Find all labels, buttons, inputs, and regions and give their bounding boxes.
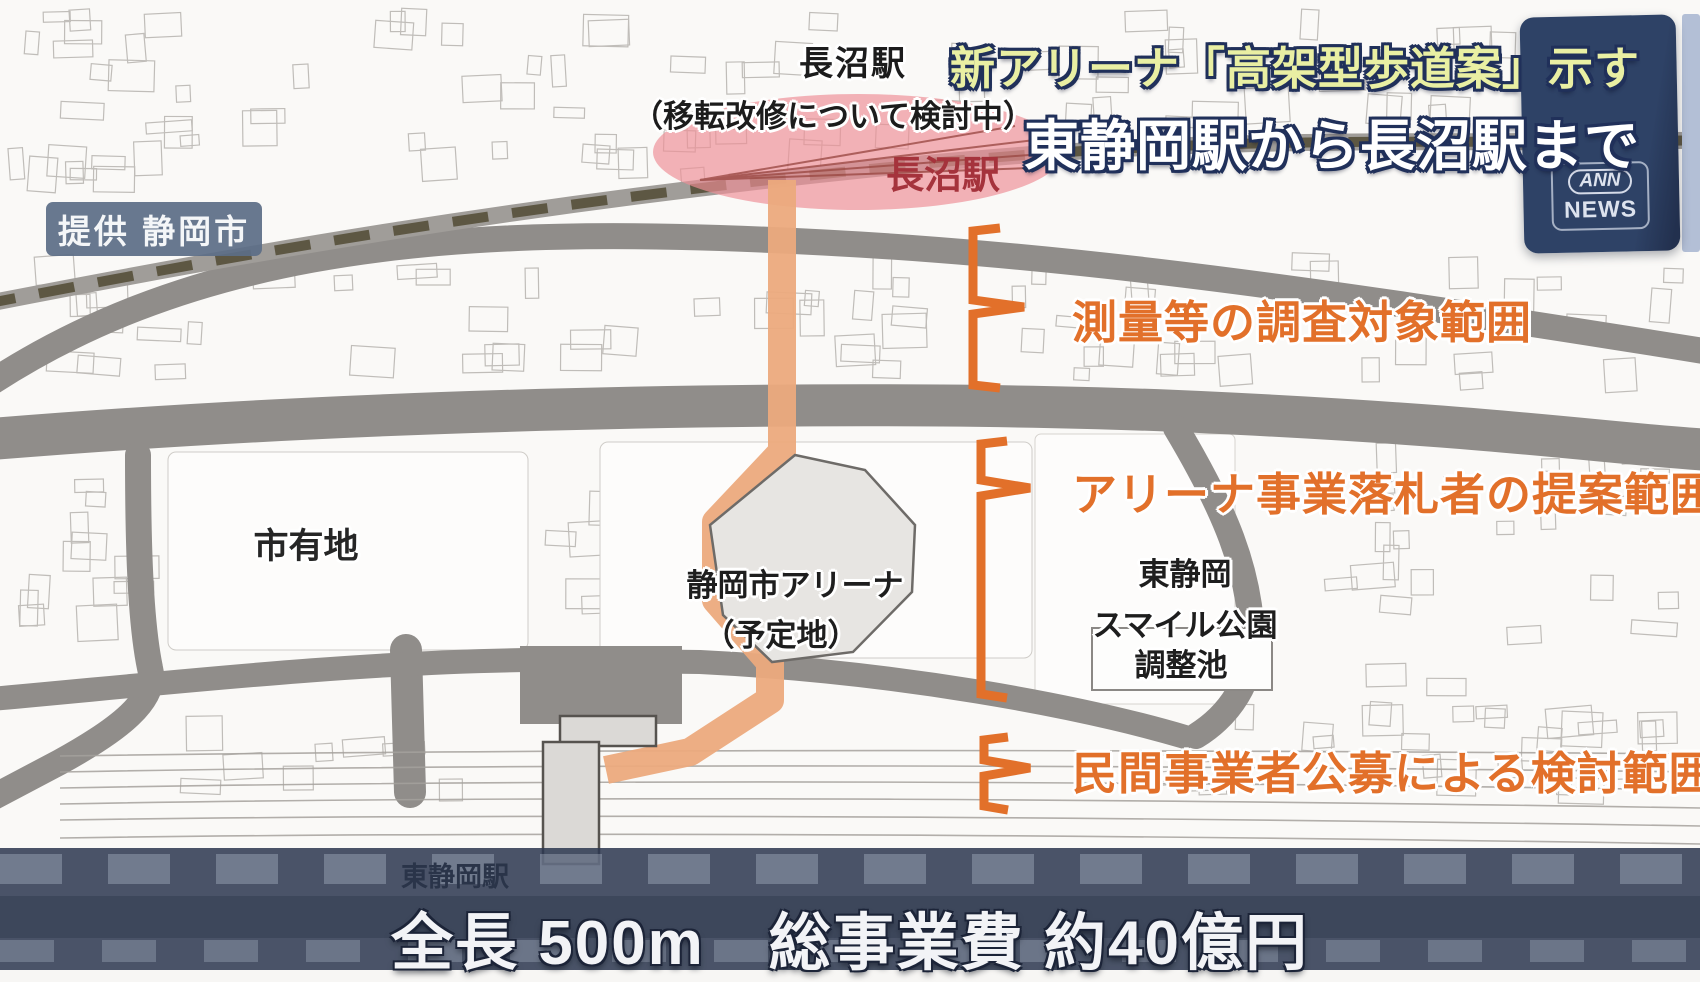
headline-block: 新アリーナ「高架型歩道案」示す 東静岡駅から長沼駅まで <box>950 32 1640 181</box>
range-label-proposal: アリーナ事業落札者の提案範囲 <box>1072 458 1700 523</box>
smile-park-label: 東静岡 スマイル公園 <box>1092 549 1277 645</box>
smile-park-label-line2: スマイル公園 <box>1092 600 1277 645</box>
arena-site-label-line2: （予定地） <box>659 610 904 655</box>
smile-park-label-line1: 東静岡 <box>1092 549 1277 594</box>
higashi-shizuoka-station-label: 東静岡駅 <box>401 862 509 892</box>
credit-badge: 提供 静岡市 <box>46 202 262 256</box>
city-owned-land-label: 市有地 <box>253 518 358 569</box>
retention-pond-label: 調整池 <box>1135 640 1228 685</box>
headline-line1: 新アリーナ「高架型歩道案」示す <box>950 32 1640 97</box>
news-logo-text: NEWS <box>1564 195 1638 224</box>
blue-edge-strip <box>1682 14 1700 252</box>
news-frame: 東静岡駅 長沼駅 （移転改修について検討中） 長沼駅 提供 静岡市 新アリーナ「… <box>0 0 1700 970</box>
credit-badge-text: 提供 静岡市 <box>58 205 250 253</box>
range-label-survey: 測量等の調査対象範囲 <box>1072 286 1532 351</box>
arena-site-label-line1: 静岡市アリーナ <box>687 560 904 605</box>
bottom-banner-text: 全長 500m 総事業費 約40億円 <box>0 892 1700 982</box>
arena-site-label: 静岡市アリーナ （予定地） <box>687 560 904 655</box>
range-label-private: 民間事業者公募による検討範囲 <box>1072 737 1700 802</box>
headline-line2: 東静岡駅から長沼駅まで <box>950 101 1640 181</box>
